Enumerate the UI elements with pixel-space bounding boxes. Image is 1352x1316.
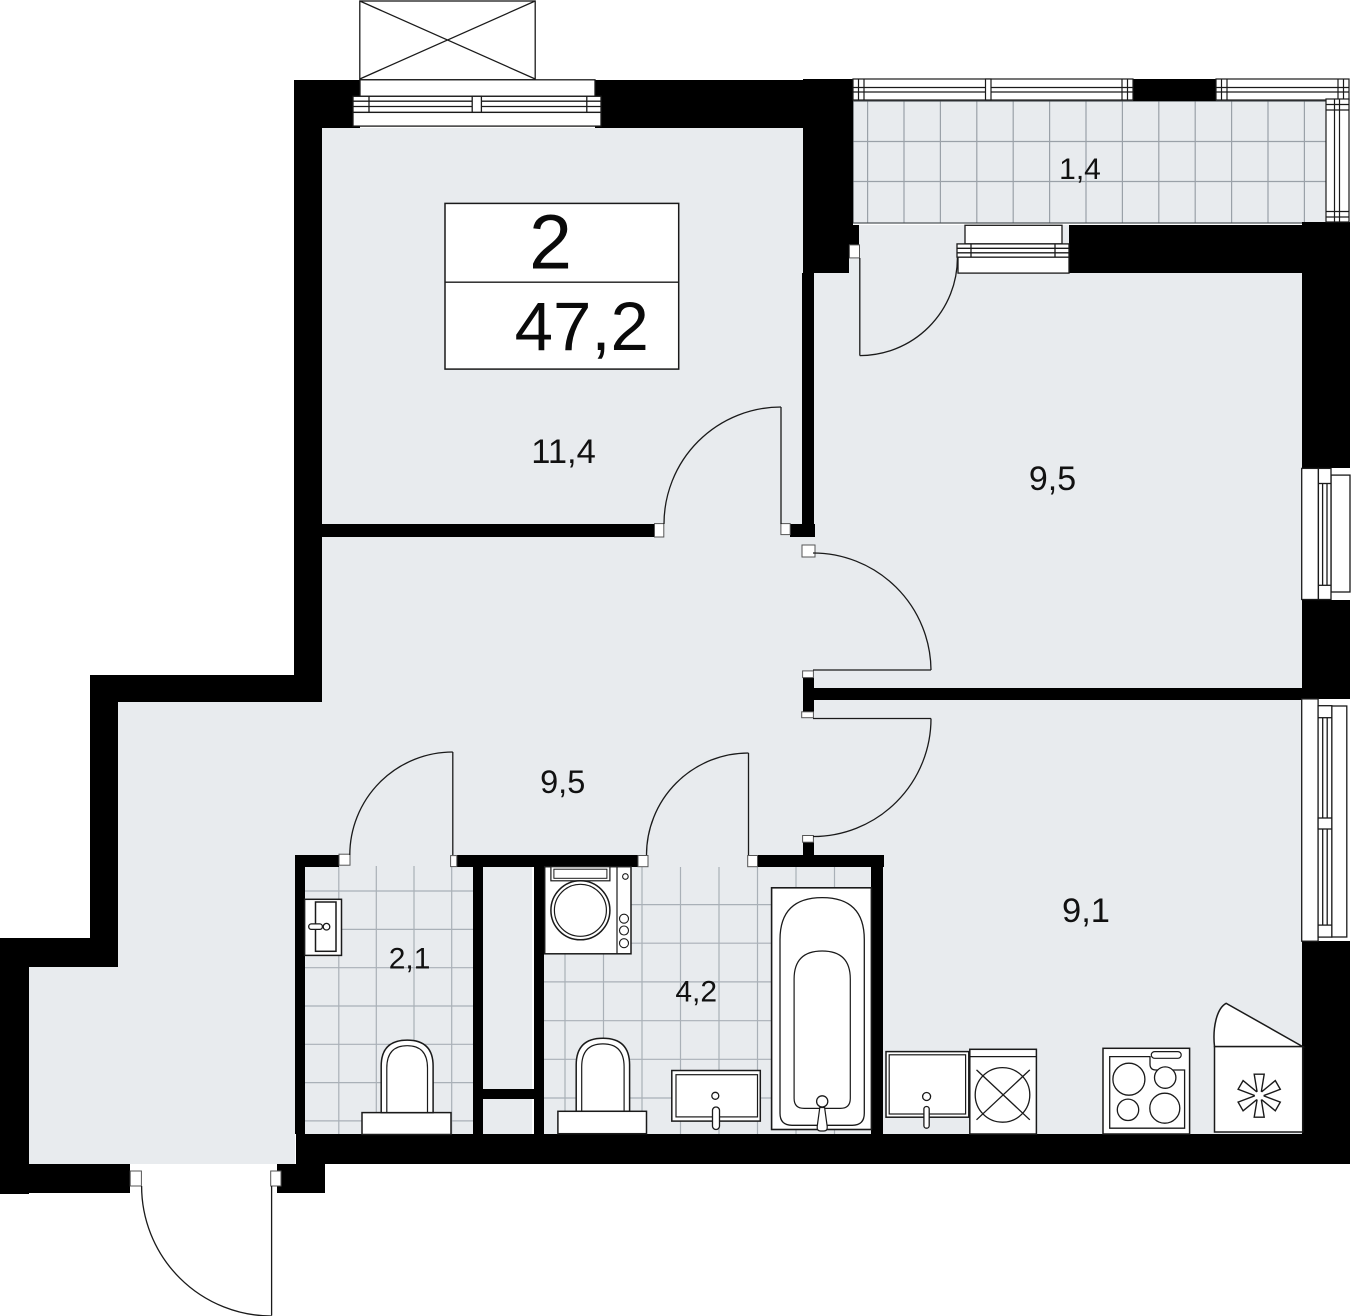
- svg-text:1,4: 1,4: [1059, 153, 1101, 186]
- svg-text:9,1: 9,1: [1062, 892, 1110, 930]
- svg-text:4,2: 4,2: [675, 976, 717, 1009]
- svg-text:2,1: 2,1: [389, 943, 431, 976]
- svg-text:11,4: 11,4: [531, 433, 596, 471]
- svg-text:47,2: 47,2: [515, 288, 649, 365]
- svg-text:2: 2: [529, 199, 572, 285]
- svg-text:9,5: 9,5: [1029, 460, 1076, 498]
- svg-text:9,5: 9,5: [540, 764, 585, 800]
